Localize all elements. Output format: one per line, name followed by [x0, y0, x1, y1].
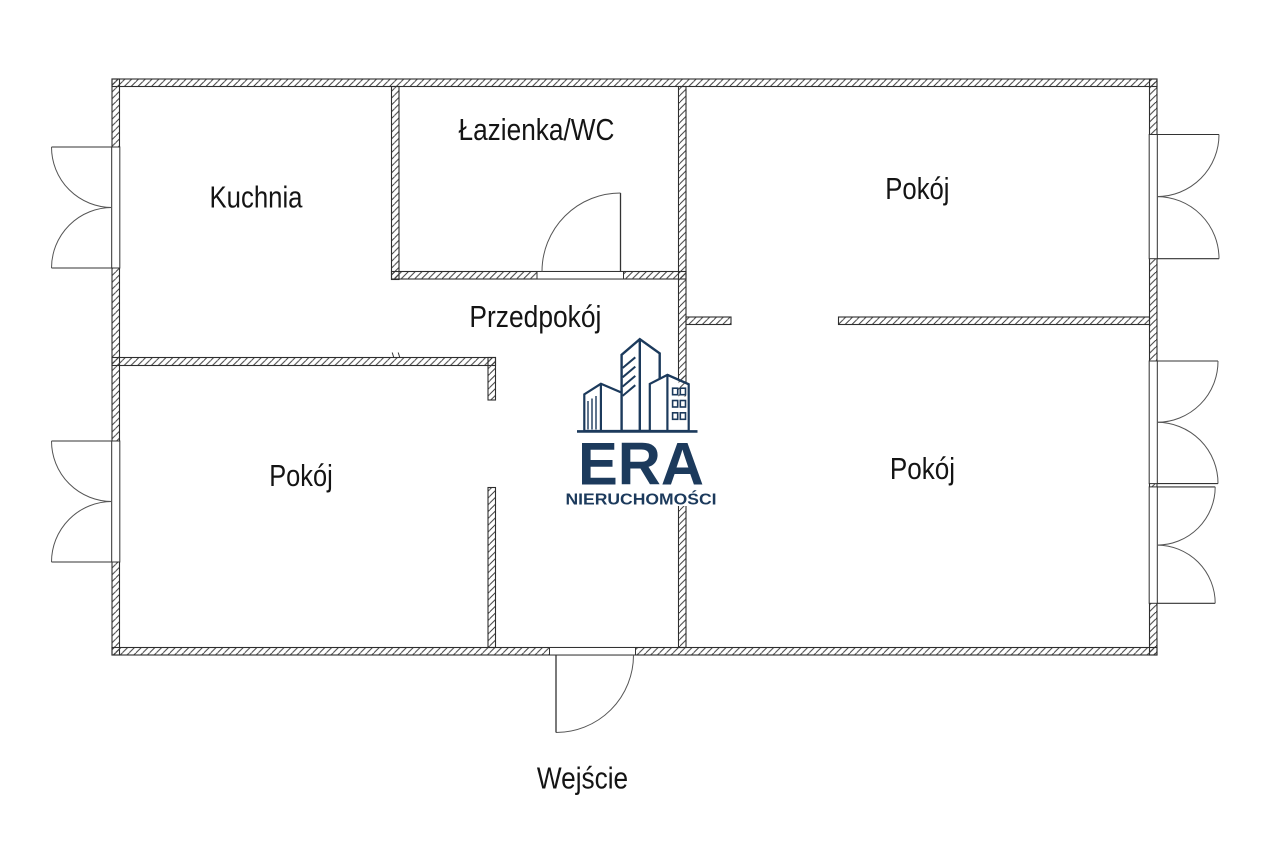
- svg-text:Przedpokój: Przedpokój: [469, 299, 601, 334]
- svg-text:Kuchnia: Kuchnia: [210, 179, 304, 214]
- svg-text:Łazienka/WC: Łazienka/WC: [459, 112, 615, 147]
- svg-text:NIERUCHOMOŚCI: NIERUCHOMOŚCI: [566, 491, 717, 509]
- svg-text:Pokój: Pokój: [885, 171, 949, 206]
- svg-text:Wejście: Wejście: [537, 761, 628, 796]
- svg-text:Pokój: Pokój: [269, 458, 333, 493]
- svg-text:Pokój: Pokój: [890, 451, 955, 486]
- svg-text:ERA: ERA: [578, 431, 704, 498]
